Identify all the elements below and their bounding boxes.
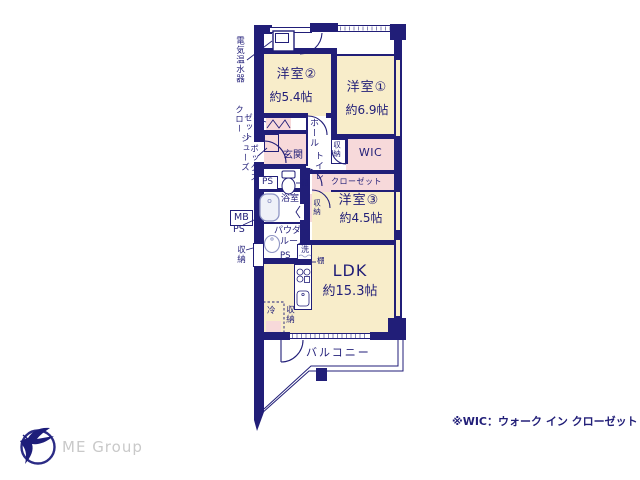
stove-burners <box>297 269 310 283</box>
door-arc-balcony <box>281 340 303 362</box>
label-ps-left: PS <box>233 225 245 235</box>
label-genkan: 玄関 <box>283 150 303 161</box>
label-ps-toilet: PS <box>262 178 273 188</box>
label-ps-powder: PS <box>280 252 291 261</box>
label-shoes-col1: シューズ <box>240 134 249 172</box>
wic-note: ※WIC：ウォーク イン クローゼット <box>452 416 638 428</box>
label-powder-1: パウダー <box>274 227 310 237</box>
powder-sink <box>265 236 280 253</box>
label-storage-kitchen: 収納 <box>285 305 294 324</box>
label-storage-y3: 収納 <box>313 199 321 216</box>
label-shelf-ldk: 棚 <box>317 257 325 265</box>
label-toilet: トイレ <box>313 151 322 181</box>
label-shoes-col2: ボックス <box>249 144 258 182</box>
floorplan-page: { "note": "※WIC：ウォーク イン クローゼット", "brand"… <box>0 0 640 480</box>
label-ldk-name: LDK <box>318 262 382 280</box>
label-water-heater: 電気温水器 <box>235 36 244 84</box>
bifold-closet2 <box>267 120 290 128</box>
label-mb: MB <box>234 213 249 223</box>
label-y2-size: 約5.4帖 <box>262 91 320 104</box>
bath-fold-door <box>296 206 300 218</box>
label-y1-name: 洋室① <box>338 81 396 95</box>
kitchen-sink <box>297 291 309 306</box>
door-arc-service <box>300 33 322 54</box>
toilet-fixture <box>282 171 295 194</box>
label-y1-size: 約6.9帖 <box>338 104 396 117</box>
brand-name: ME Group <box>62 439 143 456</box>
water-heater <box>273 31 294 51</box>
label-wic: WIC <box>348 147 393 159</box>
label-y3-name: 洋室③ <box>328 194 390 208</box>
label-bath: 浴室 <box>281 195 299 205</box>
label-storage-left: 収納 <box>236 245 245 264</box>
label-washer: 洗 <box>301 246 309 255</box>
label-y2-name: 洋室② <box>268 68 326 82</box>
label-closet-col1: クロー <box>234 105 243 134</box>
label-shelf-toilet: 棚 <box>301 179 309 187</box>
label-ldk-size: 約15.3帖 <box>312 285 388 299</box>
label-closet3: クローゼット <box>331 178 382 187</box>
label-balcony: バルコニー <box>306 347 371 359</box>
label-hall: ホール <box>308 118 317 148</box>
wall-tip <box>254 406 264 431</box>
balcony-post <box>316 368 327 381</box>
label-y3-size: 約4.5帖 <box>330 212 392 225</box>
brand-logo <box>20 428 55 464</box>
bathtub <box>260 194 279 221</box>
label-fridge: 冷 <box>267 307 276 316</box>
label-storage-wic: 収納 <box>333 141 341 158</box>
washer-mark <box>299 255 311 257</box>
